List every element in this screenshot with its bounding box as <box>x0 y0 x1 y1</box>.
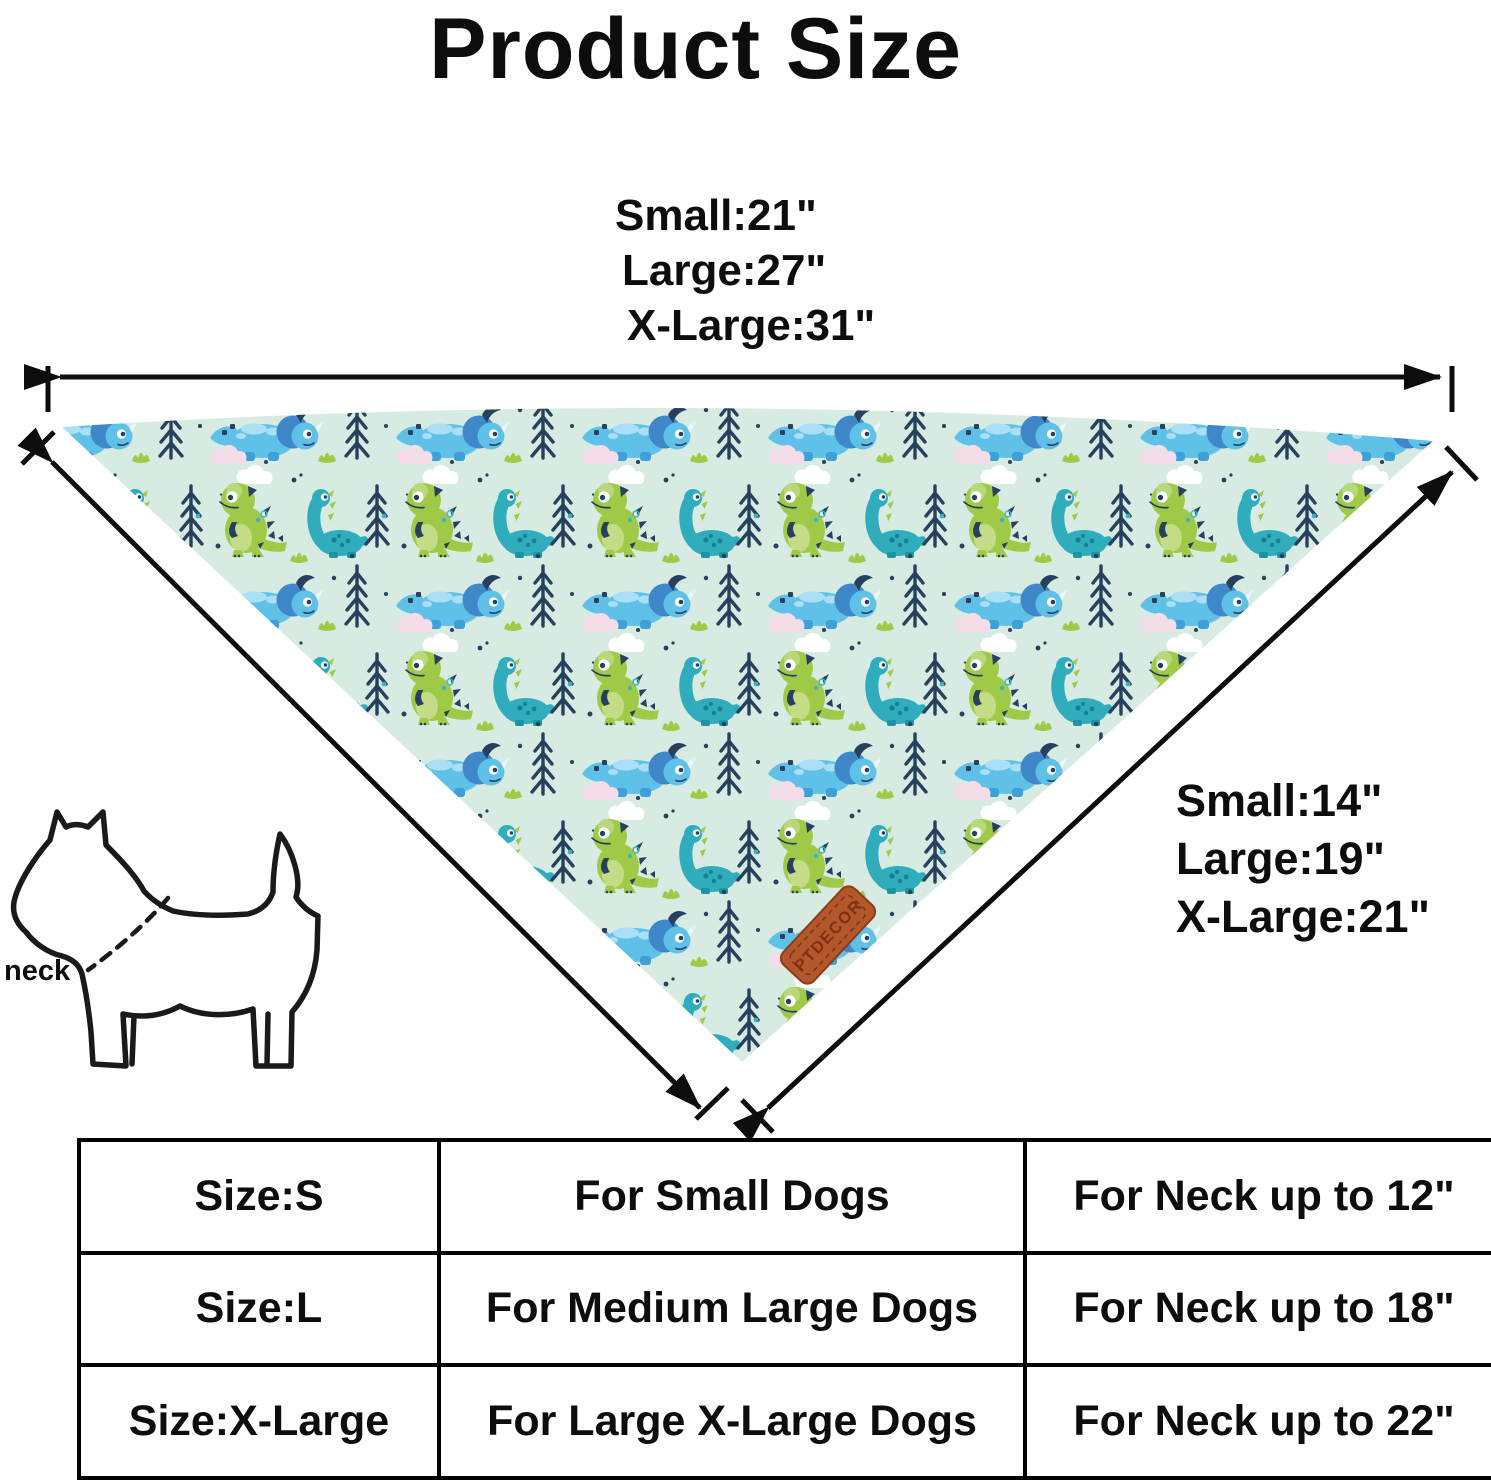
table-row: Size:X-Large For Large X-Large Dogs For … <box>79 1365 1491 1478</box>
size-table: Size:S For Small Dogs For Neck up to 12"… <box>77 1138 1491 1480</box>
cell-fits-xl: For Large X-Large Dogs <box>439 1365 1025 1478</box>
cell-size-l: Size:L <box>79 1253 439 1366</box>
top-width-arrow <box>48 366 1452 412</box>
cell-neck-l: For Neck up to 18" <box>1025 1253 1491 1366</box>
table-row: Size:S For Small Dogs For Neck up to 12" <box>79 1140 1491 1253</box>
cell-neck-s: For Neck up to 12" <box>1025 1140 1491 1253</box>
cell-fits-s: For Small Dogs <box>439 1140 1025 1253</box>
dog-outline-icon <box>14 812 318 1066</box>
cell-neck-xl: For Neck up to 22" <box>1025 1365 1491 1478</box>
table-row: Size:L For Medium Large Dogs For Neck up… <box>79 1253 1491 1366</box>
product-size-infographic: Product Size Small:21" Large:27" X-Large… <box>0 0 1491 1483</box>
cell-fits-l: For Medium Large Dogs <box>439 1253 1025 1366</box>
cell-size-s: Size:S <box>79 1140 439 1253</box>
cell-size-xl: Size:X-Large <box>79 1365 439 1478</box>
